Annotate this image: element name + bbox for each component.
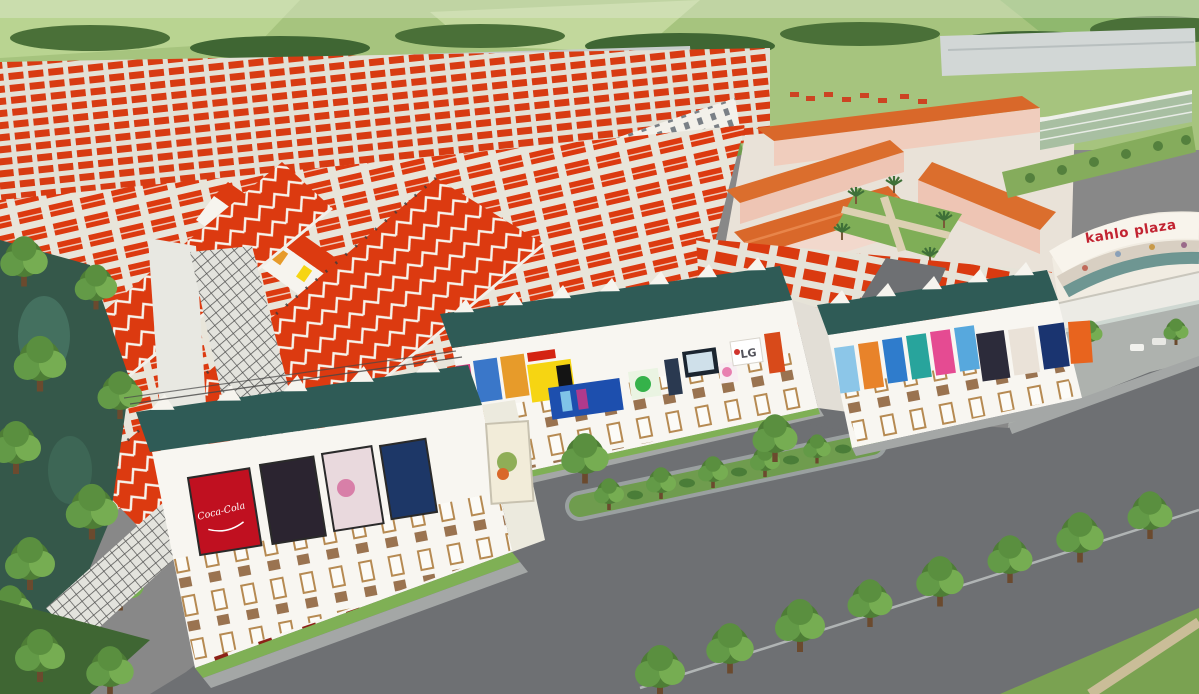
billboard-food-orange xyxy=(1068,320,1093,363)
billboard-movie-dark xyxy=(260,457,326,544)
parked-car xyxy=(1130,344,1144,351)
lg-sign-text: LG xyxy=(740,346,758,361)
parked-car xyxy=(1152,338,1166,345)
aerial-development-render: kahlo plaza xyxy=(0,0,1199,694)
horizon-haze xyxy=(0,0,1199,18)
